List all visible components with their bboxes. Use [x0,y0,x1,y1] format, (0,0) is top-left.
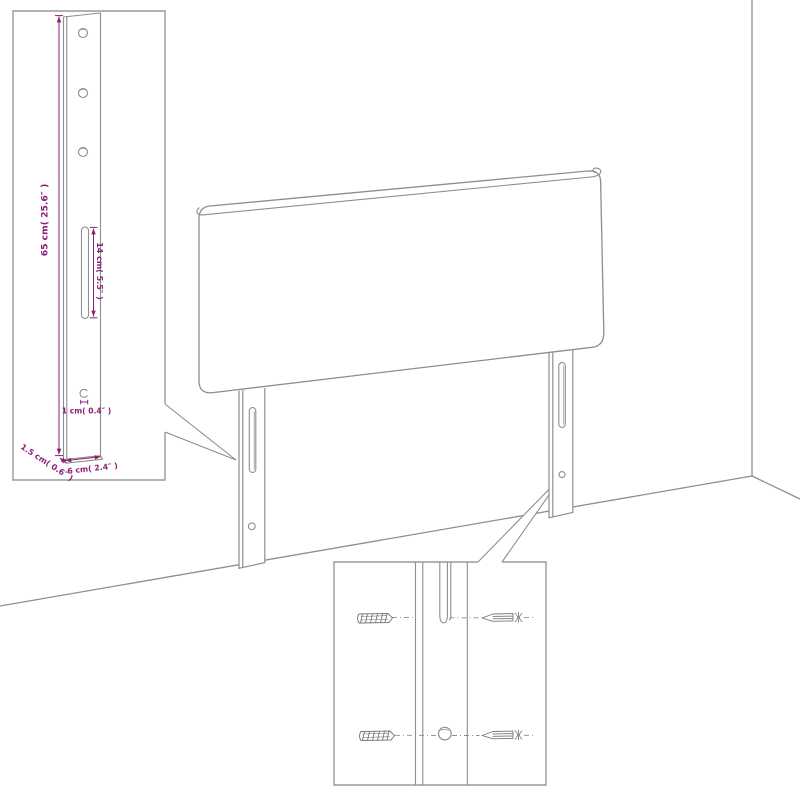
right-leg-hole [559,472,565,478]
headboard-panel [197,168,604,393]
diagram-canvas: 65 cm( 25.6″ ) 14 cm( 5.5″ ) 1 cm( 0.4″ … [0,0,800,800]
leg-detail-inset: 65 cm( 25.6″ ) 14 cm( 5.5″ ) 1 cm( 0.4″ … [13,11,165,483]
left-leg-hole [248,523,255,530]
floor-edge-right [752,476,800,499]
callout-wedge-left [165,404,236,460]
dim-label-hole: 1 cm( 0.4″ ) [62,407,111,416]
headboard-diagram: 65 cm( 25.6″ ) 14 cm( 5.5″ ) 1 cm( 0.4″ … [0,0,800,800]
left-leg [239,389,265,569]
dim-label-slot: 14 cm( 5.5″ ) [95,242,104,300]
mount-detail-inset [334,562,546,785]
dim-label-height: 65 cm( 25.6″ ) [40,184,51,257]
right-leg [549,349,573,518]
